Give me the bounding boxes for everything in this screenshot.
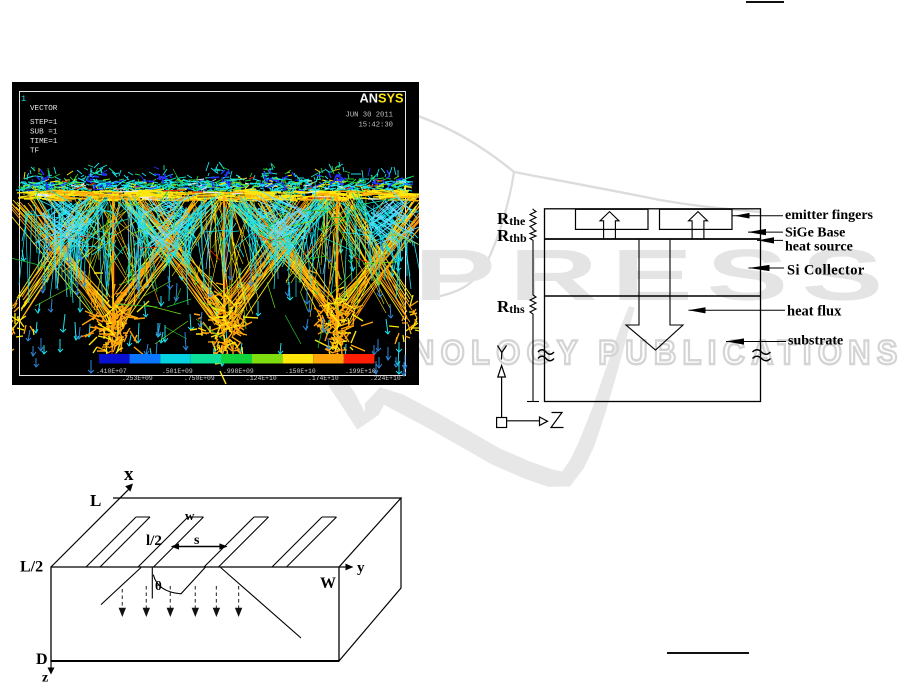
svg-text:L/2: L/2 <box>20 559 43 576</box>
svg-text:z: z <box>42 671 48 686</box>
svg-text:s: s <box>194 533 200 548</box>
svg-text:D: D <box>36 651 48 668</box>
svg-text:w: w <box>185 508 195 523</box>
svg-text:l/2: l/2 <box>146 533 162 549</box>
svg-text:y: y <box>357 560 365 576</box>
svg-text:θ: θ <box>155 578 162 593</box>
svg-text:L: L <box>90 491 101 510</box>
svg-text:x: x <box>124 464 134 485</box>
svg-text:W: W <box>320 575 336 592</box>
